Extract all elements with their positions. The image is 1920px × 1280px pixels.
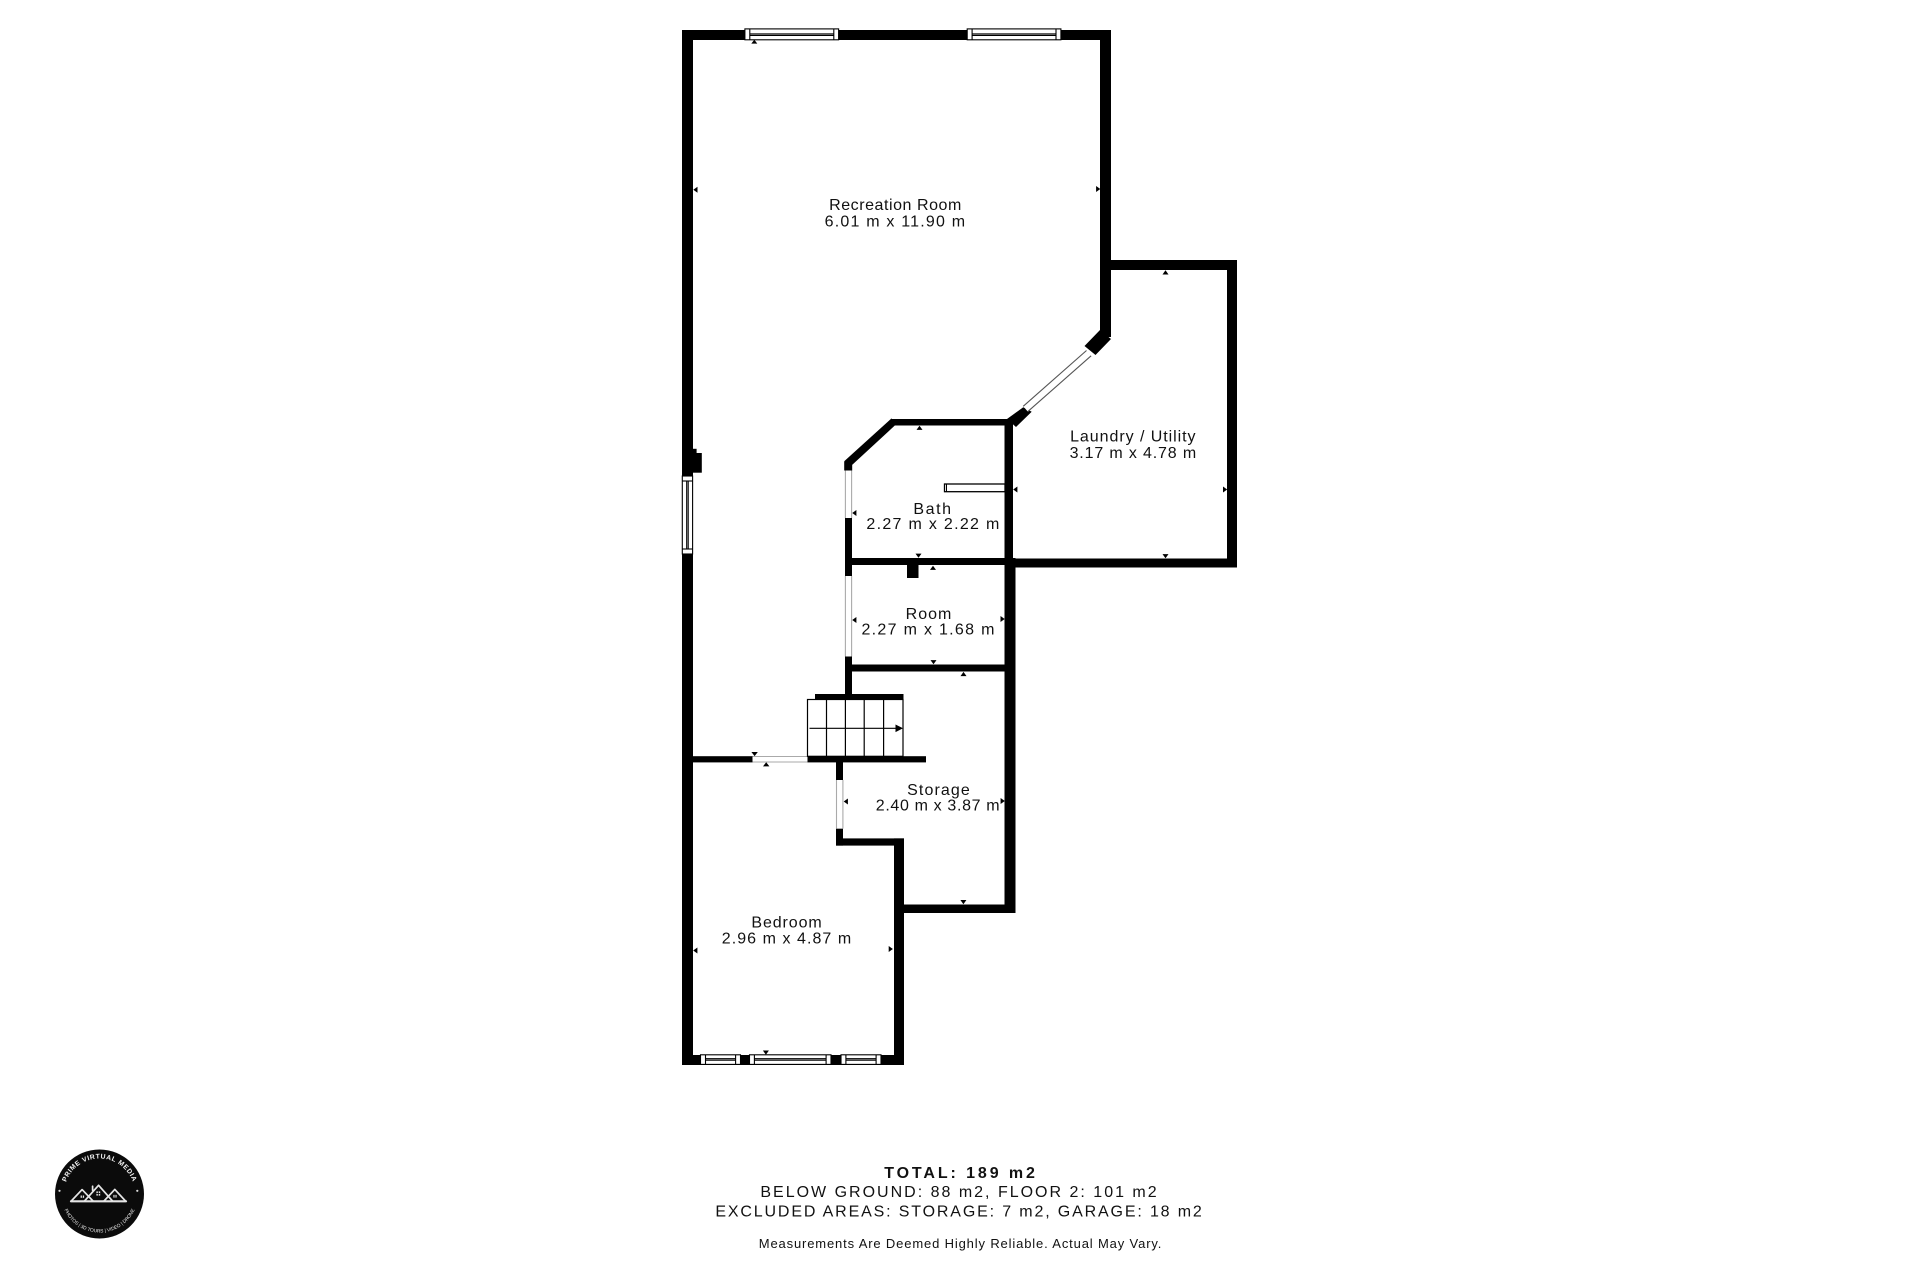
svg-text:Bedroom: Bedroom [751,915,822,932]
svg-text:TOTAL: 189 m2: TOTAL: 189 m2 [884,1165,1038,1182]
svg-text:2.27 m x 2.22 m: 2.27 m x 2.22 m [866,516,1000,533]
svg-text:BELOW GROUND: 88 m2, FLOOR 2:: BELOW GROUND: 88 m2, FLOOR 2: 101 m2 [760,1184,1158,1201]
svg-text:Measurements Are Deemed Highly: Measurements Are Deemed Highly Reliable.… [759,1236,1162,1251]
svg-text:2.96 m x 4.87 m: 2.96 m x 4.87 m [722,930,852,947]
svg-text:3.17 m x 4.78 m: 3.17 m x 4.78 m [1070,445,1197,462]
svg-text:2.40 m x 3.87 m: 2.40 m x 3.87 m [876,798,1000,815]
svg-text:Laundry / Utility: Laundry / Utility [1070,429,1196,446]
svg-text:Storage: Storage [907,782,971,799]
svg-text:EXCLUDED AREAS: STORAGE: 7 m2,: EXCLUDED AREAS: STORAGE: 7 m2, GARAGE: 1… [715,1204,1203,1221]
svg-text:Room: Room [906,606,953,623]
svg-text:6.01 m x 11.90 m: 6.01 m x 11.90 m [825,214,967,231]
svg-text:2.27 m x 1.68 m: 2.27 m x 1.68 m [861,621,995,638]
svg-text:Recreation Room: Recreation Room [829,197,962,214]
